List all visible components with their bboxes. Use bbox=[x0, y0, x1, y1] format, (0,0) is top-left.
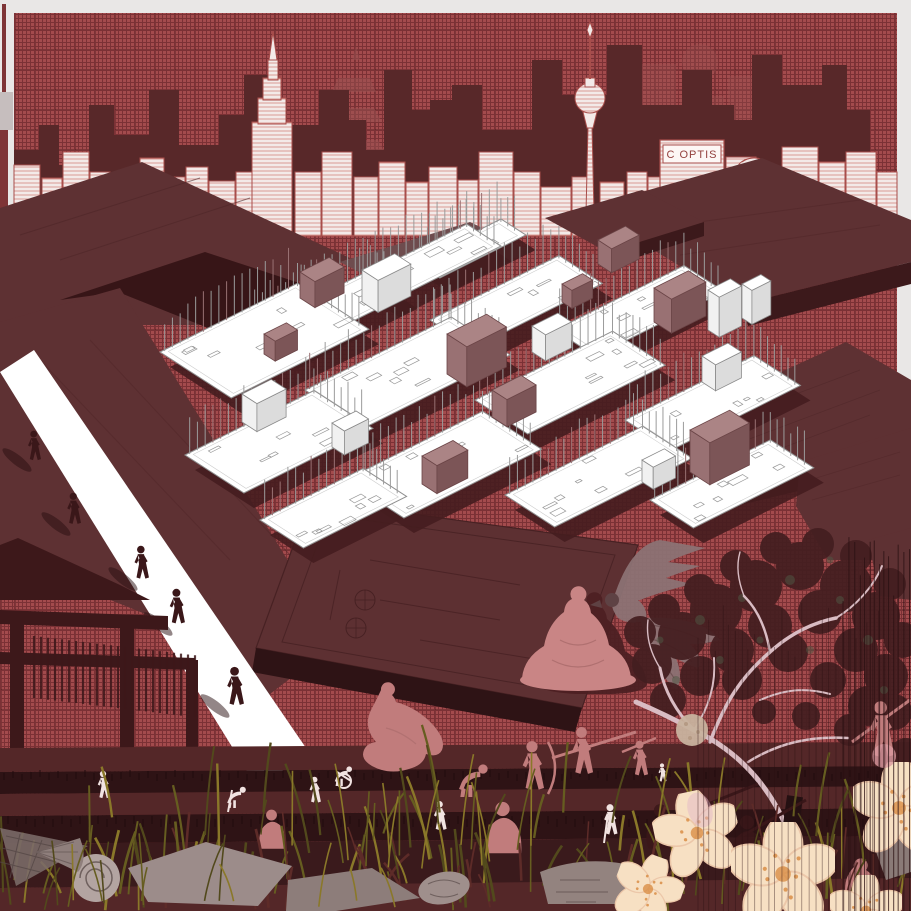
spire-building bbox=[252, 32, 292, 236]
sign-text: C OPTIS bbox=[666, 149, 717, 161]
architectural-collage: C OPTIS bbox=[0, 0, 911, 911]
slat-fence bbox=[34, 636, 195, 717]
box-left-face bbox=[708, 290, 719, 337]
torii-lintel bbox=[0, 610, 168, 630]
box-left-face bbox=[742, 284, 752, 324]
sketched-building bbox=[514, 172, 540, 236]
sketched-building bbox=[406, 182, 428, 236]
grass-blade bbox=[89, 785, 90, 842]
torii-pillar bbox=[10, 612, 24, 762]
sketched-building bbox=[379, 162, 405, 236]
sketched-building bbox=[322, 152, 352, 236]
scene-art: C OPTIS bbox=[0, 0, 911, 911]
sketched-building bbox=[295, 172, 321, 236]
sketched-building bbox=[354, 177, 378, 236]
grass-blade bbox=[531, 752, 532, 845]
